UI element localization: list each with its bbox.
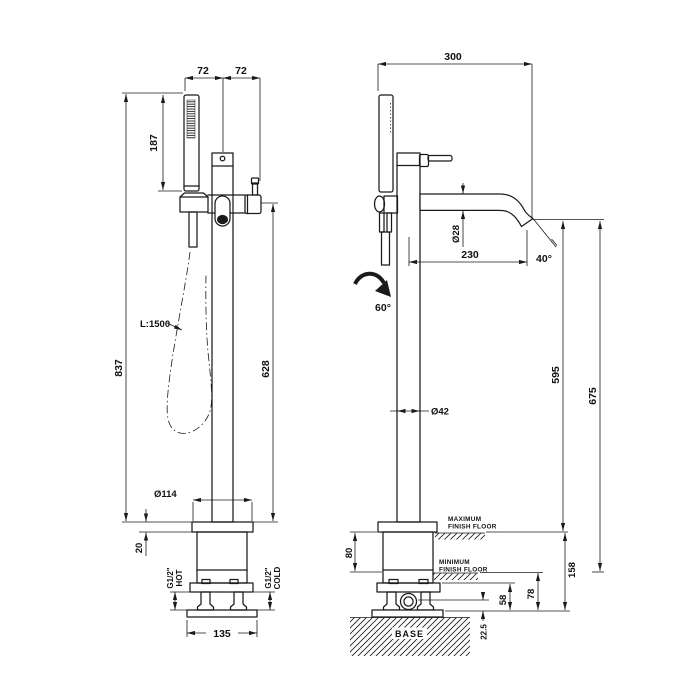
cap-hole: [220, 156, 225, 161]
front-inlet-leg-right: [231, 592, 247, 610]
side-handshower: [375, 95, 398, 265]
dim-300: 300: [444, 51, 462, 63]
handle-tube-side: [382, 232, 390, 265]
dim-22-5: 22.5: [480, 624, 489, 640]
spray-face-pattern: [187, 100, 195, 138]
dim-78: 78: [526, 589, 537, 600]
dim-column-diameter: Ø42: [431, 407, 449, 418]
dim-158: 158: [567, 562, 578, 578]
hot-label: HOT: [175, 569, 184, 586]
handle-pin: [253, 183, 258, 195]
max-floor-label-1: MAXIMUM: [448, 516, 481, 523]
front-connection-flange: [190, 583, 253, 592]
min-floor-hatch: [433, 574, 478, 581]
front-cover-plate: [192, 522, 253, 532]
front-hose: [167, 252, 212, 433]
dim-837: 837: [113, 359, 125, 377]
dim-60deg: 60°: [375, 302, 391, 314]
side-cover-plate: [378, 522, 437, 532]
base-label: BASE: [395, 629, 424, 639]
max-floor-label-2: FINISH FLOOR: [448, 524, 497, 531]
side-spout: [420, 194, 533, 227]
min-floor-label-1: MINIMUM: [439, 559, 470, 566]
dim-58: 58: [498, 595, 509, 606]
dim-135: 135: [213, 628, 231, 640]
side-connection-flange: [377, 583, 440, 592]
dim-72-left: 72: [197, 65, 209, 77]
dim-72-right: 72: [235, 65, 247, 77]
lever-bar: [428, 156, 452, 162]
swivel-arrow: [355, 274, 384, 284]
side-view: BASE 300 Ø28 230 40°: [344, 51, 604, 656]
side-underfloor-assembly: [372, 522, 443, 617]
front-view: 72 72 187 837 L:1500 628 Ø114: [113, 65, 282, 640]
dim-20: 20: [134, 543, 145, 554]
floor-and-base: BASE: [350, 533, 485, 656]
front-handle: [245, 178, 261, 214]
side-column: [397, 153, 420, 522]
handshower-handle: [189, 212, 197, 247]
dim-230: 230: [461, 249, 479, 261]
dim-40deg: 40°: [536, 253, 552, 265]
dim-spout-diameter: Ø28: [451, 225, 462, 243]
side-base-plate: [372, 610, 443, 617]
dim-628: 628: [260, 360, 272, 378]
inlet-fitting-inner: [404, 597, 413, 606]
front-base-plate: [187, 610, 257, 617]
dim-595: 595: [550, 366, 562, 384]
max-floor-hatch: [435, 533, 485, 540]
dim-187: 187: [148, 134, 160, 152]
front-body-spout: [208, 195, 245, 226]
cold-label: COLD: [273, 566, 282, 589]
technical-drawing-canvas: 72 72 187 837 L:1500 628 Ø114: [0, 0, 700, 700]
front-handshower: [180, 95, 208, 247]
dim-80: 80: [344, 548, 355, 559]
hose-length-label: L:1500: [140, 319, 170, 330]
front-inlet-leg-left: [198, 592, 214, 610]
inlet-fitting-outer: [401, 594, 417, 610]
dim-675: 675: [587, 387, 599, 405]
hot-size-label: G1/2": [166, 567, 175, 588]
front-underfloor-assembly: [187, 522, 257, 617]
cold-size-label: G1/2": [264, 567, 273, 588]
side-lever: [420, 155, 453, 167]
bath-mixer-dimension-drawing: 72 72 187 837 L:1500 628 Ø114: [0, 0, 700, 700]
holder-knob-side: [375, 196, 385, 212]
dim-plate-diameter: Ø114: [154, 489, 177, 500]
handshower-holder: [180, 193, 208, 212]
spout-aperture: [217, 215, 228, 224]
